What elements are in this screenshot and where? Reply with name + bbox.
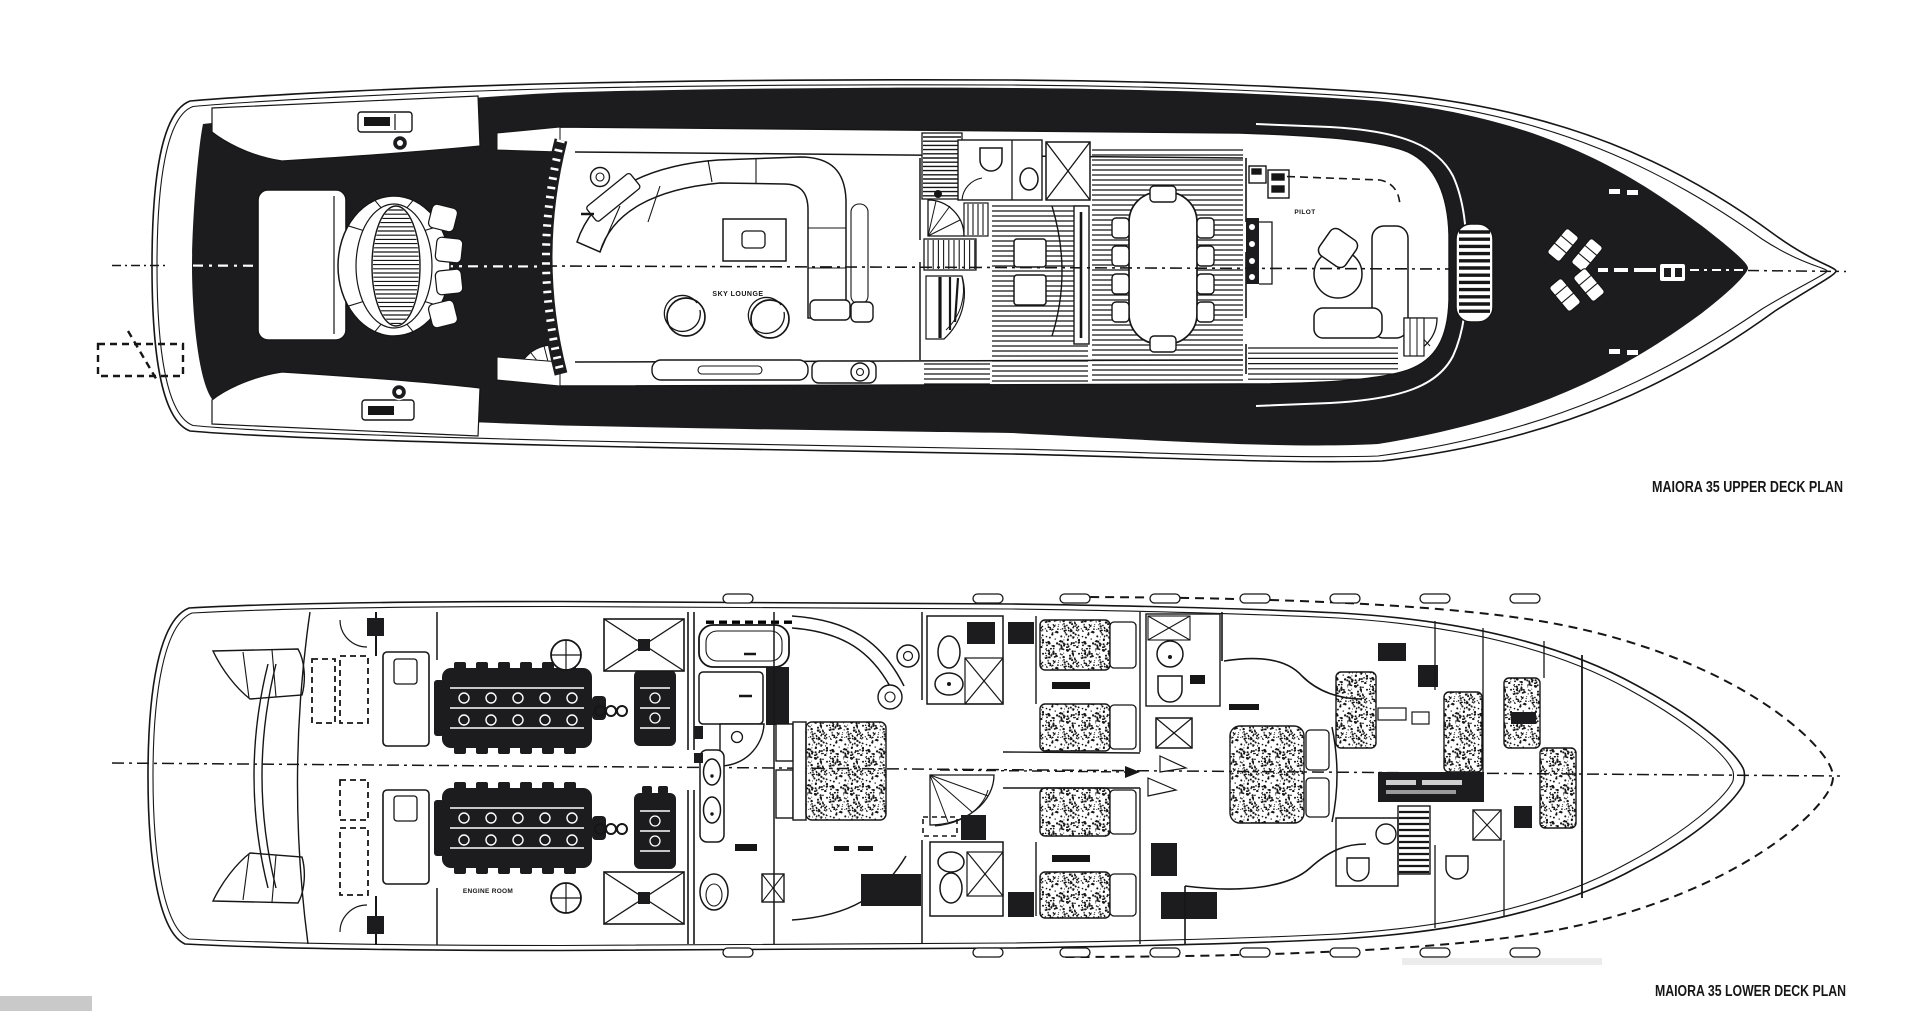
svg-text:ENGINE ROOM: ENGINE ROOM bbox=[463, 888, 513, 895]
svg-text:MAIORA 35 UPPER DECK PLAN: MAIORA 35 UPPER DECK PLAN bbox=[1652, 479, 1843, 496]
svg-text:PILOT: PILOT bbox=[1294, 209, 1315, 216]
svg-text:SKY LOUNGE: SKY LOUNGE bbox=[712, 291, 763, 298]
svg-text:MAIORA 35 LOWER DECK PLAN: MAIORA 35 LOWER DECK PLAN bbox=[1655, 983, 1846, 1000]
